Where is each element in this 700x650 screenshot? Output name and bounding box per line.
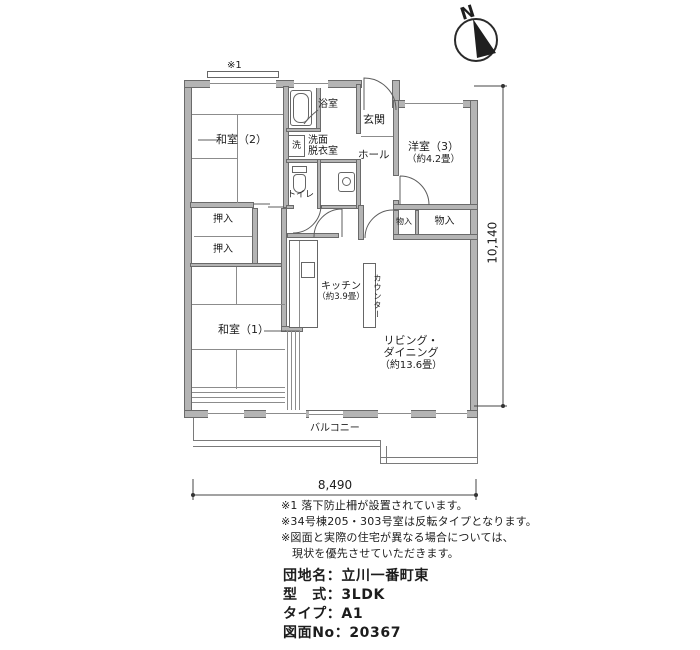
- floorplan-canvas: N ※1 和室（2） 浴室 洗 洗面 脱衣室 トイレ 玄関 ホール 洋室（3）: [0, 0, 700, 650]
- wall-washroom-bottom: [286, 159, 358, 163]
- engawa-line: [192, 402, 285, 403]
- sink-icon-basin: [342, 177, 351, 186]
- wall-monoire-top: [393, 204, 478, 210]
- window: [378, 410, 411, 418]
- room-label-living2: ダイニング: [369, 347, 453, 359]
- property-drawing-number: 図面No：20367: [283, 624, 429, 643]
- room-label-balcony: バルコニー: [310, 423, 360, 434]
- wall-kitchen-top: [287, 233, 339, 238]
- balcony-line: [386, 446, 387, 464]
- room-label-monoire-b: 物入: [419, 216, 470, 227]
- oshiire-divider-line: [194, 236, 252, 237]
- wall-left: [184, 80, 192, 418]
- room-label-yoshitsu3: 洋室（3）: [397, 141, 470, 153]
- window: [294, 80, 328, 88]
- balcony-line: [477, 418, 478, 464]
- wall-toilet-right: [317, 159, 321, 209]
- wall-bath-bottom: [286, 128, 321, 132]
- sliding-panel-line: [291, 331, 292, 410]
- room-label-washitsu1: 和室（1）: [218, 324, 269, 336]
- bathtub-icon-inner: [293, 93, 309, 123]
- room-label-oshiire-b: 押入: [194, 244, 252, 255]
- wall-oshiire-right: [252, 208, 258, 266]
- engawa-line: [192, 387, 285, 388]
- kitchen-sink-icon: [301, 262, 315, 278]
- washer-label: 洗: [292, 141, 301, 151]
- yoshitsu3-door-arc: [400, 176, 429, 205]
- tatami-line: [192, 349, 285, 350]
- room-label-oshiire-a: 押入: [194, 214, 252, 225]
- room-label-bath: 浴室: [318, 99, 338, 110]
- sliding-panel-line: [287, 331, 288, 410]
- room-label-senmen: 洗面 脱衣室: [308, 135, 338, 157]
- counter-label: カウンター: [372, 274, 381, 319]
- wall-hall-divider: [358, 205, 364, 240]
- balcony-line: [380, 463, 478, 464]
- kitchen-unit: [289, 240, 318, 328]
- wall-kitchen-left: [281, 208, 287, 330]
- compass-circle: [455, 19, 497, 61]
- room-label-yoshitsu3-size: （約4.2畳）: [395, 155, 472, 166]
- room-label-kitchen-size: （約3.9畳）: [313, 293, 369, 303]
- balcony-door-window: [309, 411, 343, 419]
- window: [208, 410, 244, 418]
- property-plan-type: タイプ：A1: [283, 605, 429, 624]
- toilet-tank-icon: [292, 166, 307, 173]
- toilet-door-arc: [293, 205, 321, 233]
- balcony-line: [193, 418, 194, 441]
- wall-right: [470, 100, 478, 418]
- balcony-line: [380, 457, 478, 458]
- kitchen-unit-line: [299, 241, 300, 327]
- room-label-genkan: 玄関: [363, 114, 385, 126]
- room-label-monoire-a: 物入: [396, 218, 412, 227]
- window-line: [266, 413, 306, 414]
- window: [436, 410, 467, 418]
- room-label-kitchen: キッチン: [316, 281, 366, 292]
- north-label: N: [458, 1, 478, 24]
- tatami-line: [192, 158, 238, 159]
- property-danchi-name: 団地名：立川一番町東: [283, 567, 429, 586]
- tatami-line: [236, 349, 237, 389]
- balcony-line: [193, 440, 381, 441]
- note-line: ※34号棟205・303号室は反転タイプとなります。: [281, 514, 537, 530]
- wall-toilet-bottom: [286, 205, 294, 209]
- window: [266, 410, 306, 418]
- window-guard-rail: [207, 71, 279, 78]
- room-label-living-size: （約13.6畳）: [365, 360, 457, 371]
- property-info-block: 団地名：立川一番町東 型 式：3LDK タイプ：A1 図面No：20367: [283, 567, 429, 643]
- sliding-panel-line: [295, 331, 296, 410]
- dimension-height: 10,140: [486, 211, 499, 275]
- property-layout-type: 型 式：3LDK: [283, 586, 429, 605]
- living-door-arc: [365, 210, 393, 238]
- dimension-width: 8,490: [285, 479, 385, 492]
- genkan-step-line: [361, 136, 393, 137]
- window-line: [210, 83, 276, 84]
- tatami-line: [192, 304, 285, 305]
- engawa-line: [192, 392, 285, 393]
- wall-niche-bottom: [321, 205, 358, 209]
- window-line: [378, 413, 411, 414]
- room-label-hall: ホール: [358, 150, 390, 162]
- window-line: [405, 103, 463, 104]
- note-line: ※図面と実際の住宅が異なる場合については、: [281, 530, 537, 546]
- window-line: [208, 413, 244, 414]
- wall-washitsu2-bottom: [190, 202, 254, 208]
- room-label-toilet: トイレ: [287, 190, 314, 200]
- window-line: [309, 414, 343, 415]
- wall-hall-left-bottom: [356, 159, 361, 209]
- window-line: [436, 413, 467, 414]
- wall-hall-left-top: [356, 84, 361, 134]
- tatami-line: [236, 267, 237, 305]
- wall-monoire-bottom: [393, 234, 478, 240]
- balcony-line: [193, 446, 381, 447]
- sliding-panel-line: [299, 331, 300, 410]
- north-needle-icon: [473, 19, 496, 58]
- window: [210, 80, 276, 88]
- note1-mark: ※1: [227, 60, 242, 71]
- window-line: [294, 83, 328, 84]
- note-line: ※1 落下防止柵が設置されています。: [281, 498, 537, 514]
- senmen-line1: 洗面: [308, 135, 338, 146]
- note-line: 現状を優先させていただきます。: [281, 546, 537, 562]
- room-label-washitsu2: 和室（2）: [216, 134, 267, 146]
- window: [405, 100, 463, 108]
- notes-block: ※1 落下防止柵が設置されています。 ※34号棟205・303号室は反転タイプと…: [281, 498, 537, 562]
- senmen-line2: 脱衣室: [308, 146, 338, 157]
- engawa-line: [192, 397, 285, 398]
- sliding-door-mark: [254, 204, 284, 207]
- balcony-line: [380, 440, 381, 464]
